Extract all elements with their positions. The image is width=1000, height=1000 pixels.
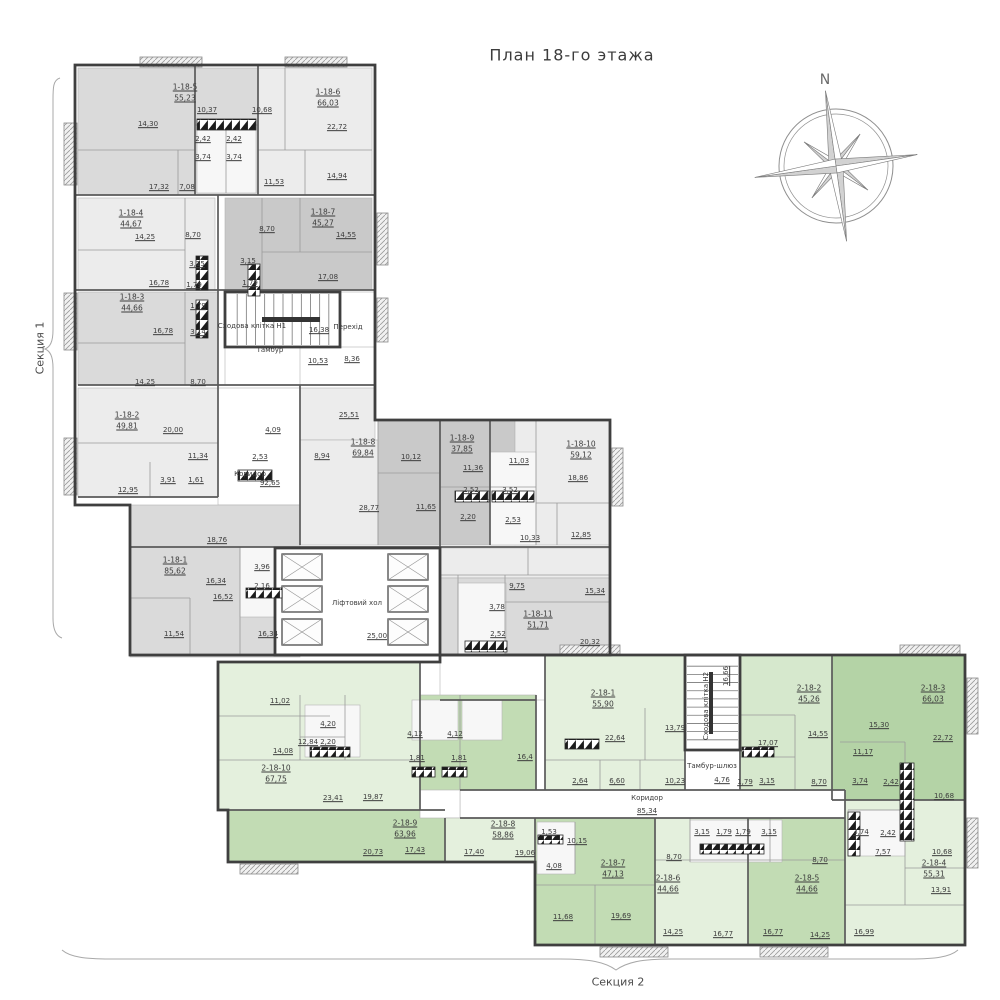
balcony-hatch — [967, 678, 978, 734]
elevator-shaft — [282, 586, 322, 612]
room-block — [78, 388, 218, 497]
vent-shaft — [196, 256, 208, 290]
room-block — [78, 198, 215, 290]
elevator-shaft — [388, 619, 428, 645]
balcony-hatch — [377, 213, 388, 265]
room-block — [740, 655, 832, 790]
room-block — [378, 420, 440, 545]
vent-shaft — [700, 844, 764, 854]
vent-shaft — [310, 747, 350, 757]
vent-shaft — [238, 470, 272, 481]
room-block — [545, 655, 685, 790]
room-block — [537, 822, 575, 874]
room-block — [420, 790, 460, 818]
balcony-hatch — [240, 864, 298, 874]
room-block — [832, 655, 965, 800]
elevator-shaft — [388, 586, 428, 612]
room-block — [197, 127, 256, 193]
room-block — [690, 820, 782, 862]
vent-shaft — [196, 300, 208, 338]
balcony-hatch — [600, 947, 668, 957]
floorplan-page: План 18-го этажа Секция 1 Секция 2 N 1-1… — [0, 0, 1000, 1000]
room-block — [228, 810, 445, 862]
room-block — [225, 198, 372, 290]
vent-shaft — [248, 264, 260, 296]
stair-rail — [262, 317, 320, 322]
room-block — [300, 440, 378, 545]
vent-shaft — [412, 767, 435, 777]
floorplan-drawing — [0, 0, 1000, 1000]
vent-shaft — [197, 119, 256, 130]
balcony-hatch — [612, 448, 623, 506]
elevator-shaft — [282, 619, 322, 645]
vent-shaft — [492, 491, 534, 502]
compass-rose — [744, 79, 928, 252]
balcony-hatch — [760, 947, 828, 957]
stair-rail — [709, 672, 713, 734]
vent-shaft — [848, 812, 860, 856]
room-block — [440, 655, 545, 700]
vent-shaft — [442, 767, 467, 777]
balcony-hatch — [967, 818, 978, 868]
vent-shaft — [246, 588, 282, 598]
vent-shaft — [538, 835, 563, 844]
room-block — [440, 548, 610, 578]
elevator-shaft — [388, 554, 428, 580]
room-block — [300, 347, 375, 388]
room-block — [462, 700, 502, 740]
room-block — [258, 68, 372, 195]
vent-shaft — [455, 491, 489, 502]
vent-shaft — [565, 739, 599, 749]
room-block — [412, 700, 458, 740]
balcony-hatch — [900, 645, 960, 654]
room-block — [218, 388, 300, 505]
balcony-hatch — [377, 298, 388, 342]
vent-shaft — [465, 641, 507, 652]
room-block — [460, 790, 845, 818]
vent-shaft — [900, 763, 914, 841]
section-brace — [45, 78, 62, 638]
vent-shaft — [742, 747, 774, 757]
room-block — [445, 818, 535, 862]
elevator-shaft — [282, 554, 322, 580]
room-block — [300, 385, 375, 440]
